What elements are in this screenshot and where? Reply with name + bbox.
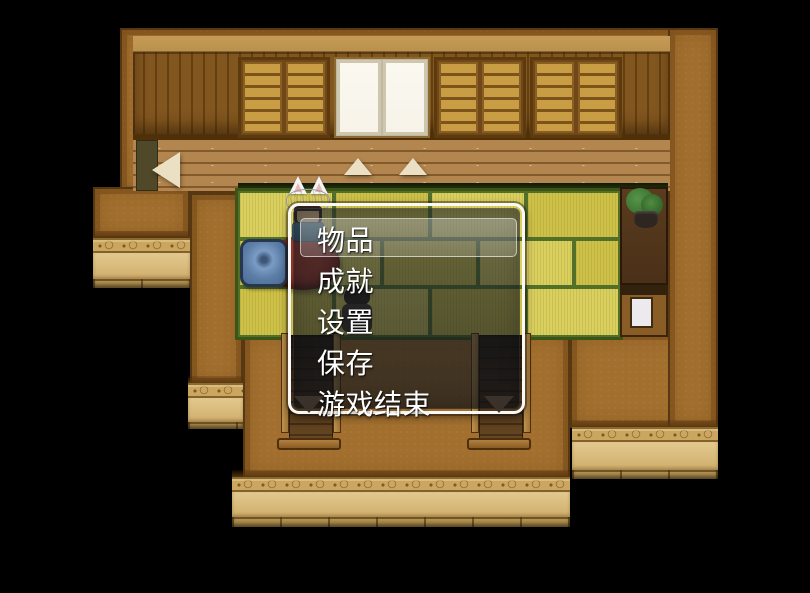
menu-item-save[interactable]: 保存 bbox=[317, 341, 512, 382]
plant-pot bbox=[634, 211, 658, 228]
wall-top-trim bbox=[133, 36, 670, 53]
closet-door bbox=[286, 62, 325, 133]
tatami-mat bbox=[526, 191, 620, 239]
exterior-wall bbox=[93, 253, 190, 279]
slatted-closet-3 bbox=[530, 57, 622, 138]
exit-up-arrow-icon bbox=[344, 158, 372, 175]
exterior-wall bbox=[188, 398, 243, 422]
menu-item-game-end[interactable]: 游戏结束 bbox=[317, 382, 512, 423]
closet-door bbox=[439, 62, 478, 133]
menu-item-items[interactable]: 物品 bbox=[317, 218, 512, 259]
exit-down-arrow-icon bbox=[294, 396, 324, 413]
closet-door bbox=[578, 62, 617, 133]
floor-cushion bbox=[240, 239, 288, 287]
wall-top-east-column bbox=[668, 28, 718, 428]
wall-footing bbox=[232, 517, 570, 527]
door-sill bbox=[277, 438, 341, 450]
wall-footing bbox=[93, 279, 190, 288]
wall-ornament-band bbox=[93, 238, 190, 253]
slatted-closet-2 bbox=[434, 57, 526, 138]
slatted-closet-1 bbox=[238, 57, 330, 138]
tatami-mat bbox=[574, 239, 620, 287]
wall-top-west-column bbox=[190, 193, 243, 385]
wall-ornament-band bbox=[188, 383, 243, 398]
cabinet-shoji-panel bbox=[630, 297, 653, 328]
exterior-wall bbox=[572, 442, 718, 470]
menu-item-achievements[interactable]: 成就 bbox=[317, 259, 512, 300]
game-viewport: 物品 成就 设置 保存 游戏结束 bbox=[0, 0, 810, 593]
cabinet-top bbox=[620, 285, 668, 295]
shoji-panel bbox=[383, 60, 427, 135]
game-menu-window: 物品 成就 设置 保存 游戏结束 bbox=[288, 203, 525, 414]
wall-footing bbox=[188, 422, 243, 429]
wall-ornament-band bbox=[232, 477, 570, 492]
closet-door bbox=[482, 62, 521, 133]
door-sill bbox=[467, 438, 531, 450]
closet-door bbox=[535, 62, 574, 133]
shoji-screen-doors bbox=[334, 57, 430, 138]
exit-up-arrow-icon bbox=[399, 158, 427, 175]
closet-door bbox=[243, 62, 282, 133]
menu-item-settings[interactable]: 设置 bbox=[317, 300, 512, 341]
shoji-panel bbox=[337, 60, 381, 135]
exit-left-arrow-icon bbox=[152, 152, 180, 188]
exit-down-arrow-icon bbox=[484, 396, 514, 413]
wall-footing bbox=[572, 470, 718, 479]
exterior-wall bbox=[232, 492, 570, 517]
tatami-mat bbox=[526, 287, 620, 337]
wall-ornament-band bbox=[572, 427, 718, 442]
